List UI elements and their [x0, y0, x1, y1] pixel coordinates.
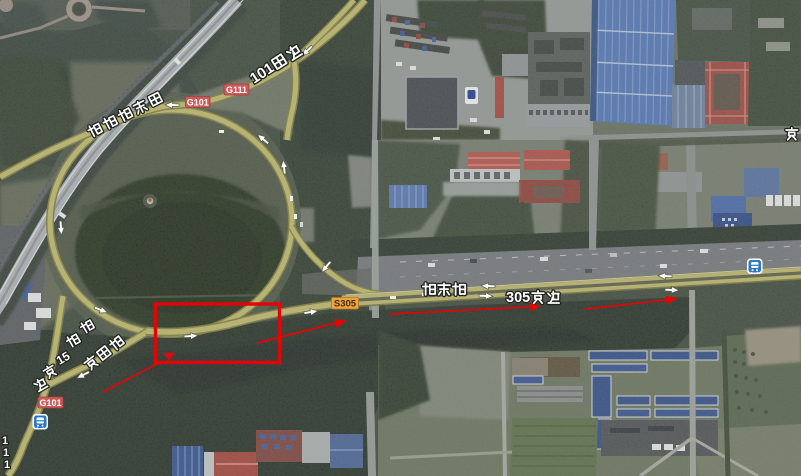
svg-text:305: 305	[506, 290, 530, 306]
svg-text:1: 1	[2, 435, 8, 447]
svg-text:G101: G101	[39, 398, 61, 408]
svg-text:1: 1	[3, 447, 9, 459]
svg-text:G101: G101	[187, 97, 209, 107]
svg-text:S305: S305	[334, 299, 357, 310]
svg-text:1: 1	[4, 459, 10, 471]
svg-text:G111: G111	[226, 85, 247, 95]
